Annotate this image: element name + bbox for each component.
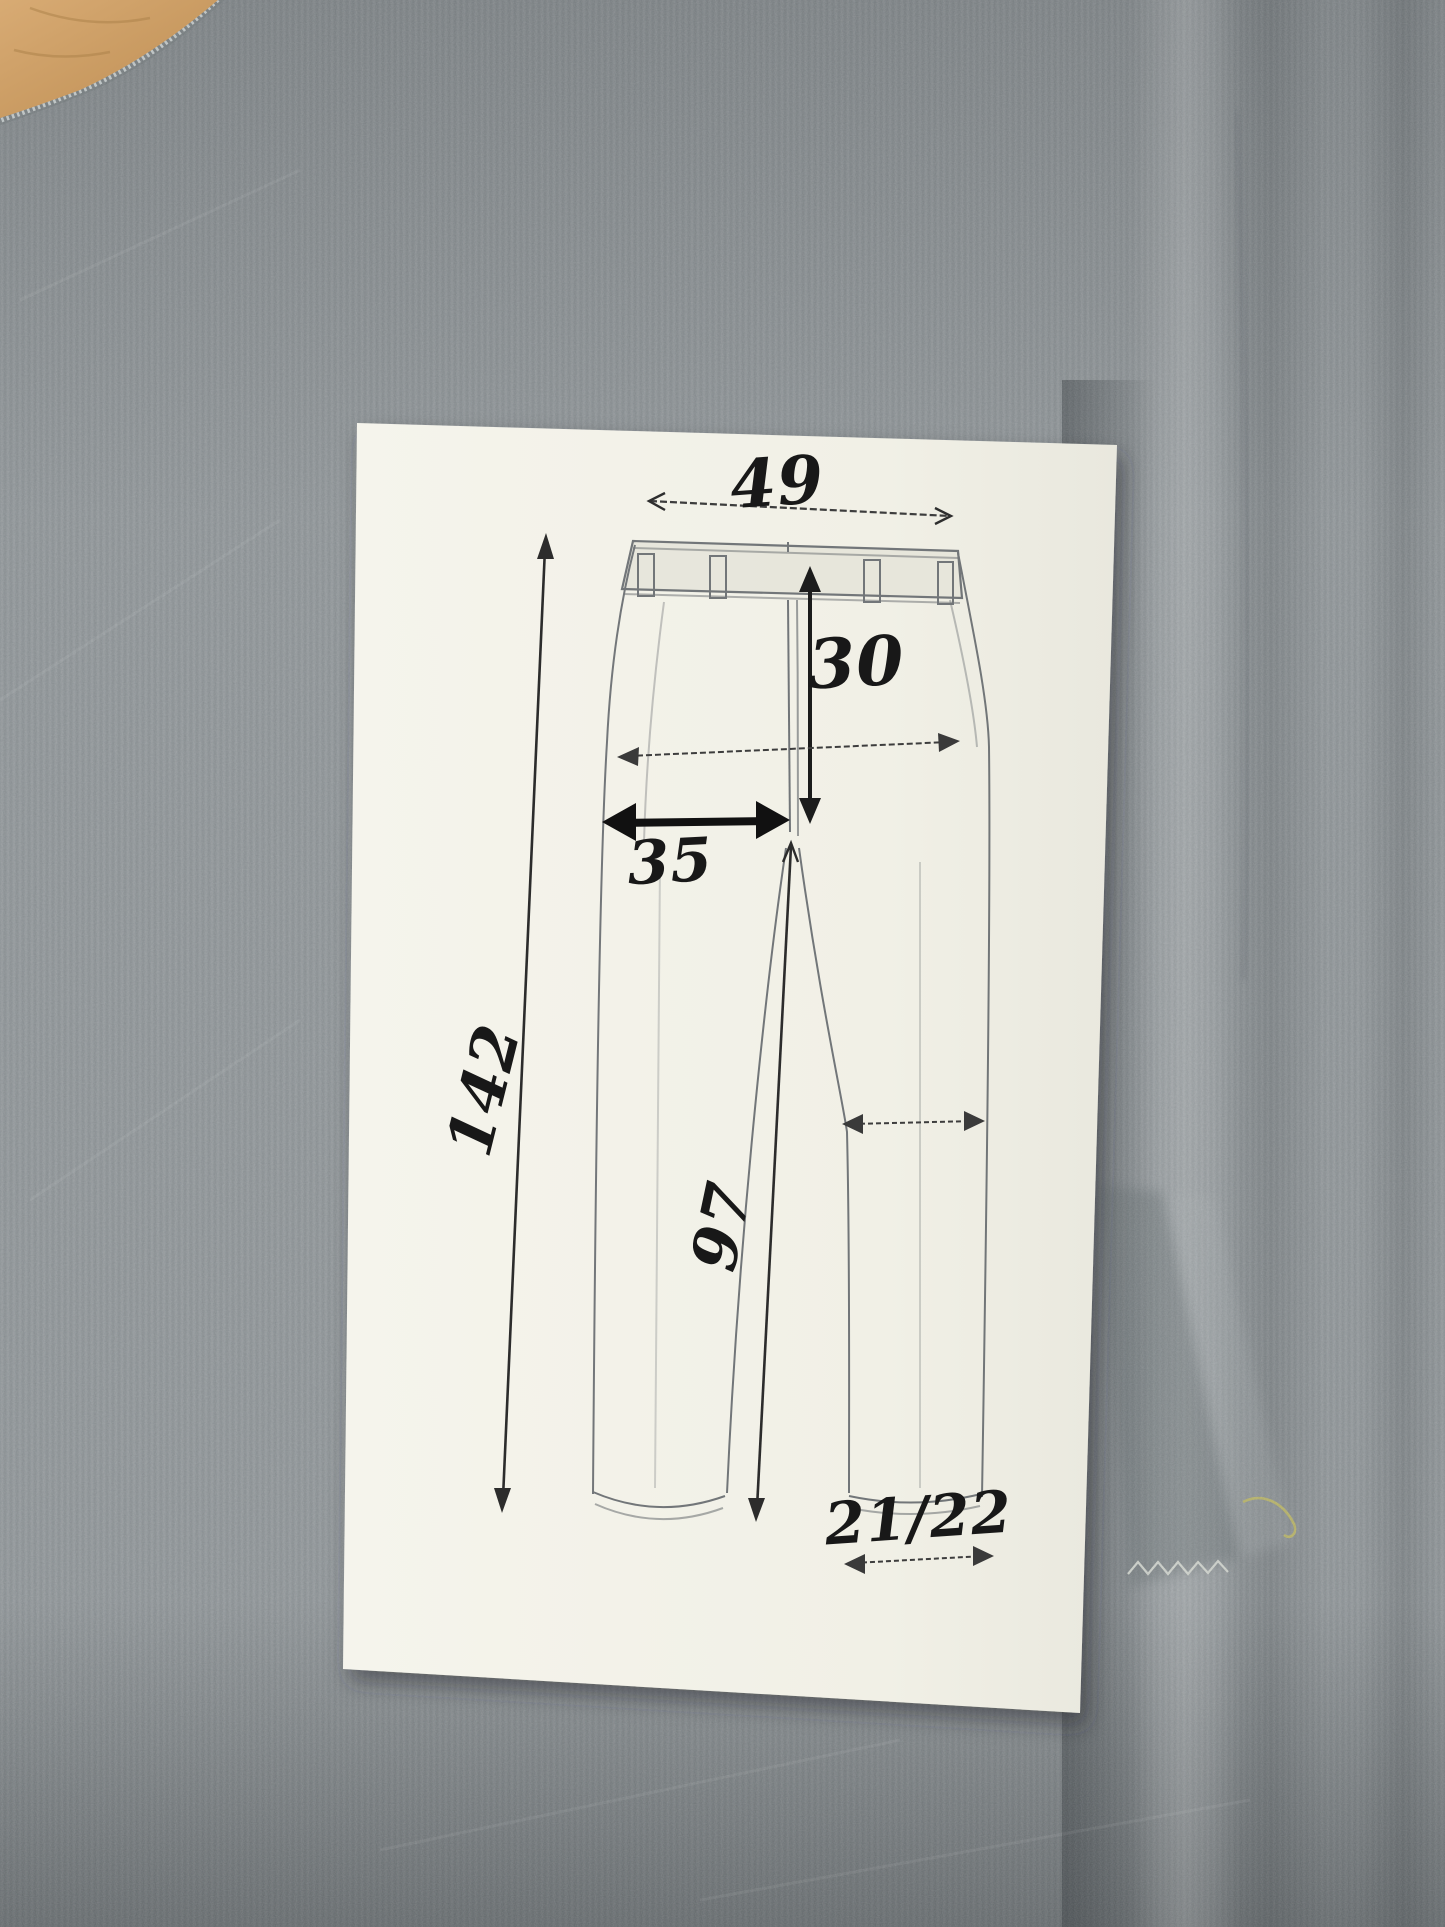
rise-measurement-label: 30 <box>806 621 907 706</box>
photo-of-measurement-sketch: 49 30 35 142 <box>0 0 1445 1927</box>
hem-measurement-label: 21/22 <box>821 1478 1014 1559</box>
fly-line-double <box>797 600 798 836</box>
waist-measurement-label: 49 <box>728 440 827 524</box>
photo-canvas: 49 30 35 142 <box>0 0 1445 1927</box>
front-arrow-line <box>620 821 772 823</box>
front-measurement-label: 35 <box>626 825 715 899</box>
